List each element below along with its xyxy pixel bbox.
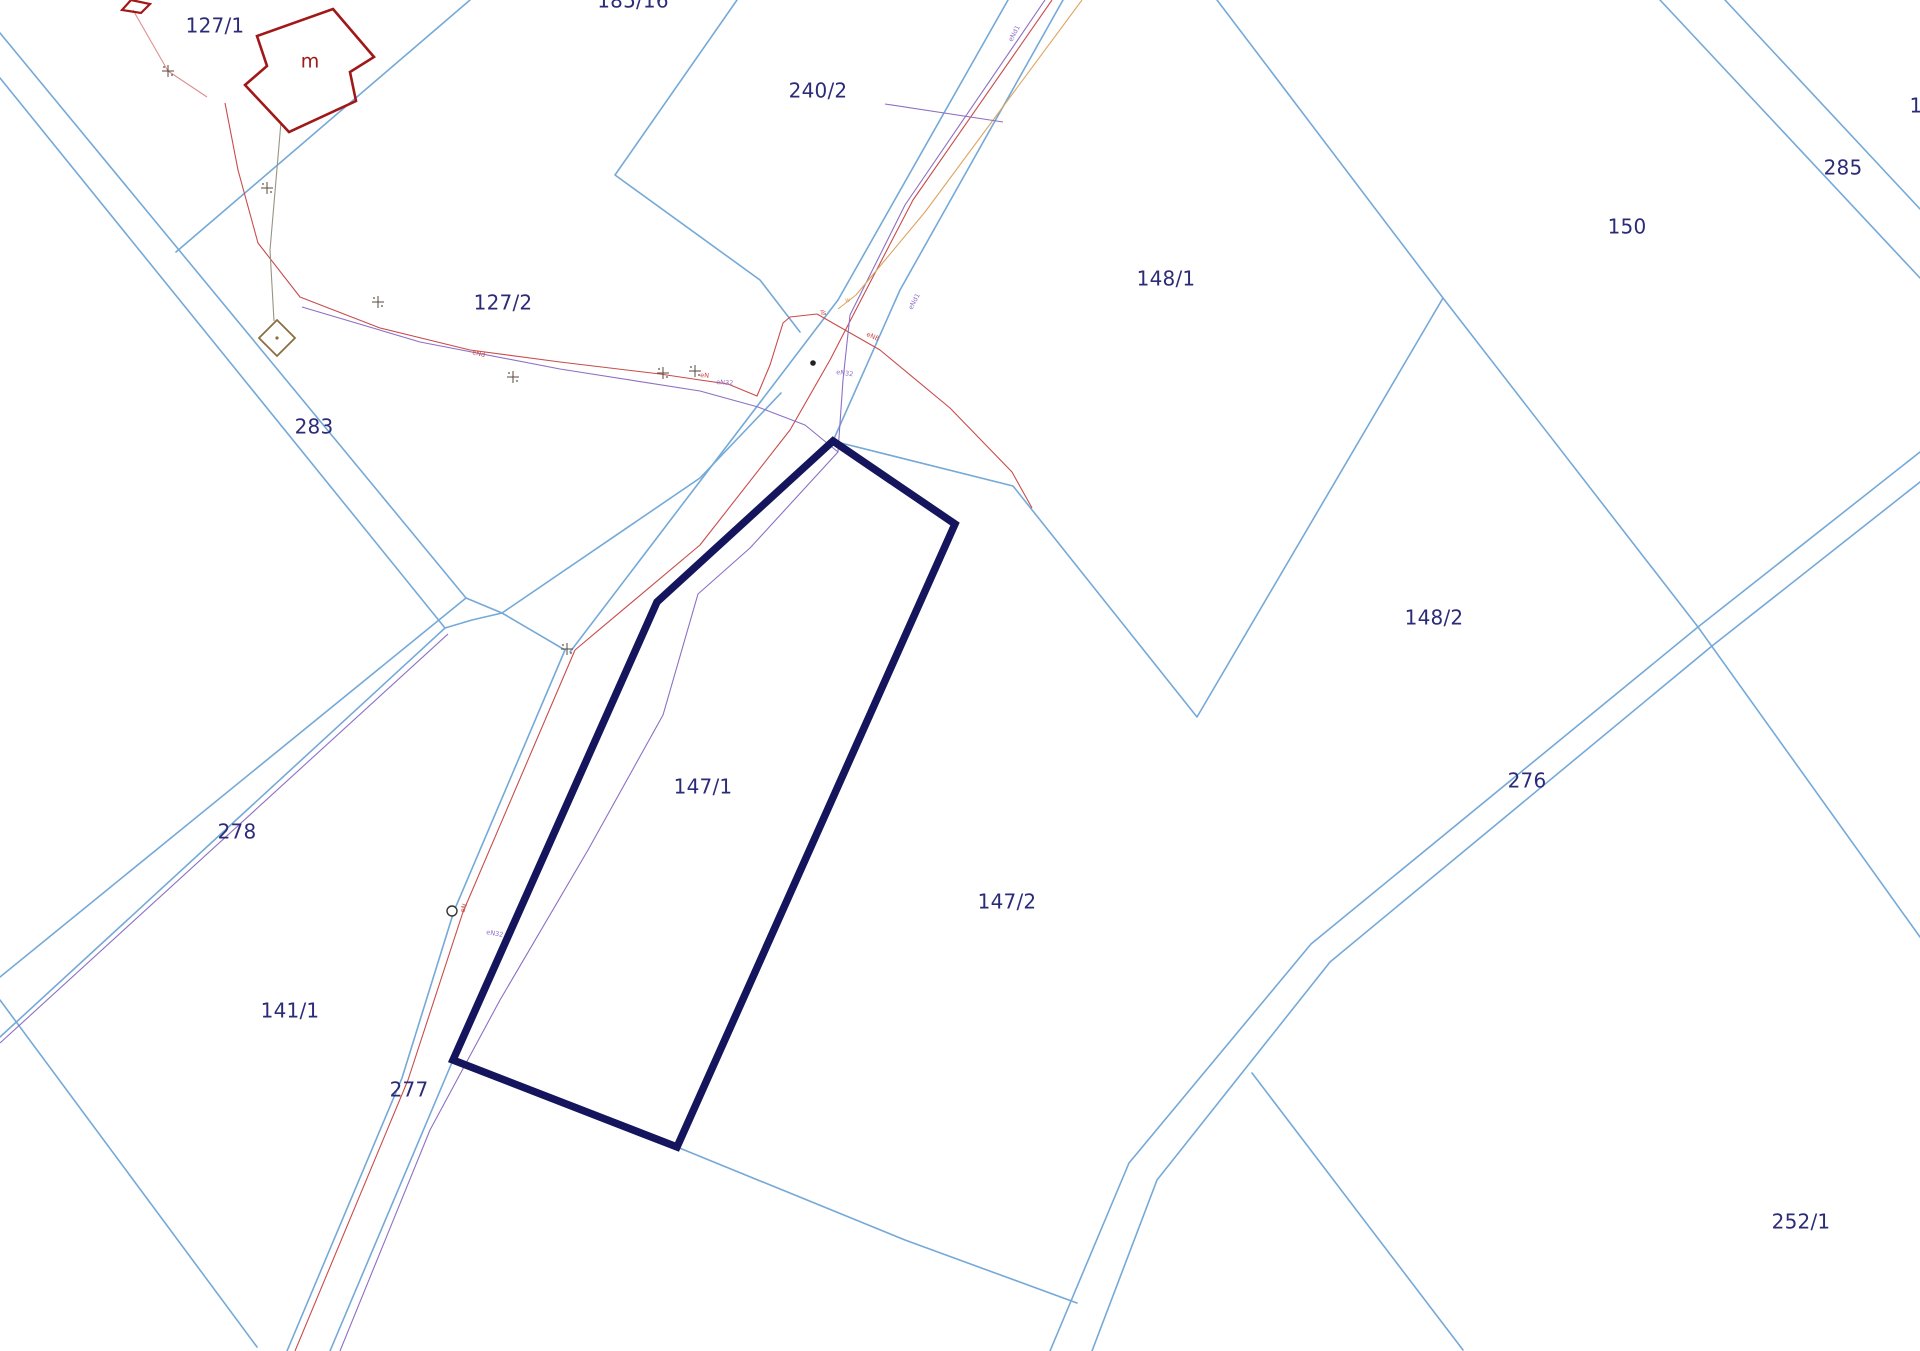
parcel-label-252-1: 252/1 xyxy=(1772,1210,1831,1234)
boundary-line-road-276-sw-nw xyxy=(1050,627,1698,1351)
utility-annotation: eN8 xyxy=(865,330,880,342)
boundary-line-road-285-upper xyxy=(1660,0,1920,278)
boundary-line-road-277-left xyxy=(287,650,565,1351)
well-circle-marker xyxy=(447,906,457,916)
boundary-line-boundary-127-1-185-16 xyxy=(176,0,470,252)
utility-annotation: eNd1 xyxy=(1007,24,1022,43)
boundary-line-branch-252-1 xyxy=(1252,1073,1463,1350)
survey-cross-marker xyxy=(657,367,669,379)
boundary-line-road-276-ne-lower xyxy=(1712,482,1920,646)
utility-annotation: eN32 xyxy=(716,378,734,387)
parcel-label-127-2: 127/2 xyxy=(474,291,533,315)
utility-line-power-branch-se-red xyxy=(817,314,1032,508)
boundary-line-road-ne-right xyxy=(833,0,1063,441)
survey-cross-marker xyxy=(507,371,519,383)
boundary-line-road-283-lower xyxy=(0,78,445,628)
utility-line-telecom-240-purple xyxy=(885,104,1003,122)
parcel-label-147-2: 147/2 xyxy=(978,890,1037,914)
parcel-label-285: 285 xyxy=(1824,156,1863,180)
boundary-line-strip-mid-line xyxy=(502,393,781,613)
survey-cross-marker xyxy=(162,65,174,77)
cadastral-map: 127/1185/16240/2148/11502851127/2283148/… xyxy=(0,0,1920,1351)
cadastral-map-view: 127/1185/16240/2148/11502851127/2283148/… xyxy=(0,0,1920,1351)
utility-annotation: eN32 xyxy=(486,928,504,939)
parcel-label-185-16: 185/16 xyxy=(597,0,669,13)
boundary-line-boundary-240-2-west xyxy=(615,0,800,332)
boundary-lines-layer xyxy=(0,0,1920,1351)
utility-line-gas-road-orange xyxy=(838,0,1082,309)
parcel-label-276: 276 xyxy=(1508,769,1547,793)
boundary-line-junction-link-b xyxy=(445,613,502,628)
survey-cross-marker xyxy=(261,182,273,194)
parcel-label-127-1: 127/1 xyxy=(186,14,245,38)
labels-layer: 127/1185/16240/2148/11502851127/2283148/… xyxy=(186,0,1920,1234)
parcel-label-148-1: 148/1 xyxy=(1137,267,1196,291)
boundary-line-road-276-sw-se xyxy=(1092,646,1712,1351)
utility-line-telecom-road-purple xyxy=(838,0,1045,452)
parcel-label-277: 277 xyxy=(390,1078,429,1102)
boundary-line-road-276-ne-upper xyxy=(1698,452,1920,627)
utility-node-dot xyxy=(810,360,816,366)
utility-annotation: eN32 xyxy=(836,368,854,378)
utility-line-service-gray xyxy=(270,122,281,321)
utility-lines-layer xyxy=(0,0,1082,1351)
parcel-label-278: 278 xyxy=(218,820,257,844)
boundary-line-road-278-upper xyxy=(0,598,466,977)
survey-cross-marker xyxy=(372,296,384,308)
utility-annotation: eN xyxy=(700,371,710,380)
parcel-label-147-1: 147/1 xyxy=(674,775,733,799)
building-corner-partial xyxy=(122,0,150,13)
boundary-line-boundary-147-2-south xyxy=(677,1147,1077,1303)
boundary-line-boundary-150-south xyxy=(1443,298,1920,937)
buildings-layer xyxy=(122,0,374,356)
parcel-label-1: 1 xyxy=(1910,94,1920,118)
boundary-line-road-285-lower xyxy=(1725,0,1920,209)
building-label-m: m xyxy=(301,51,320,73)
boundary-line-boundary-sw xyxy=(0,1000,257,1347)
parcel-label-240-2: 240/2 xyxy=(789,79,848,103)
parcel-label-148-2: 148/2 xyxy=(1405,606,1464,630)
parcel-label-283: 283 xyxy=(295,415,334,439)
diamond-center-dot xyxy=(275,336,278,339)
utility-annotation: eNd xyxy=(472,348,487,359)
boundary-line-junction-link-a xyxy=(466,598,565,650)
parcel-label-141-1: 141/1 xyxy=(261,999,320,1023)
parcel-label-150: 150 xyxy=(1608,215,1647,239)
boundary-line-boundary-240-2-148-1 xyxy=(1217,0,1443,298)
utility-annotation: Ts xyxy=(819,309,827,317)
boundary-line-road-283-upper xyxy=(0,33,466,598)
utility-line-telecom-arc-purple xyxy=(302,307,838,1351)
utility-annotation: eN xyxy=(458,902,469,913)
utility-annotation: w xyxy=(845,296,851,304)
utility-annotation: eNd1 xyxy=(907,292,922,311)
utility-line-power-arc-red xyxy=(225,103,817,396)
utility-line-power-277-red xyxy=(295,650,575,1351)
